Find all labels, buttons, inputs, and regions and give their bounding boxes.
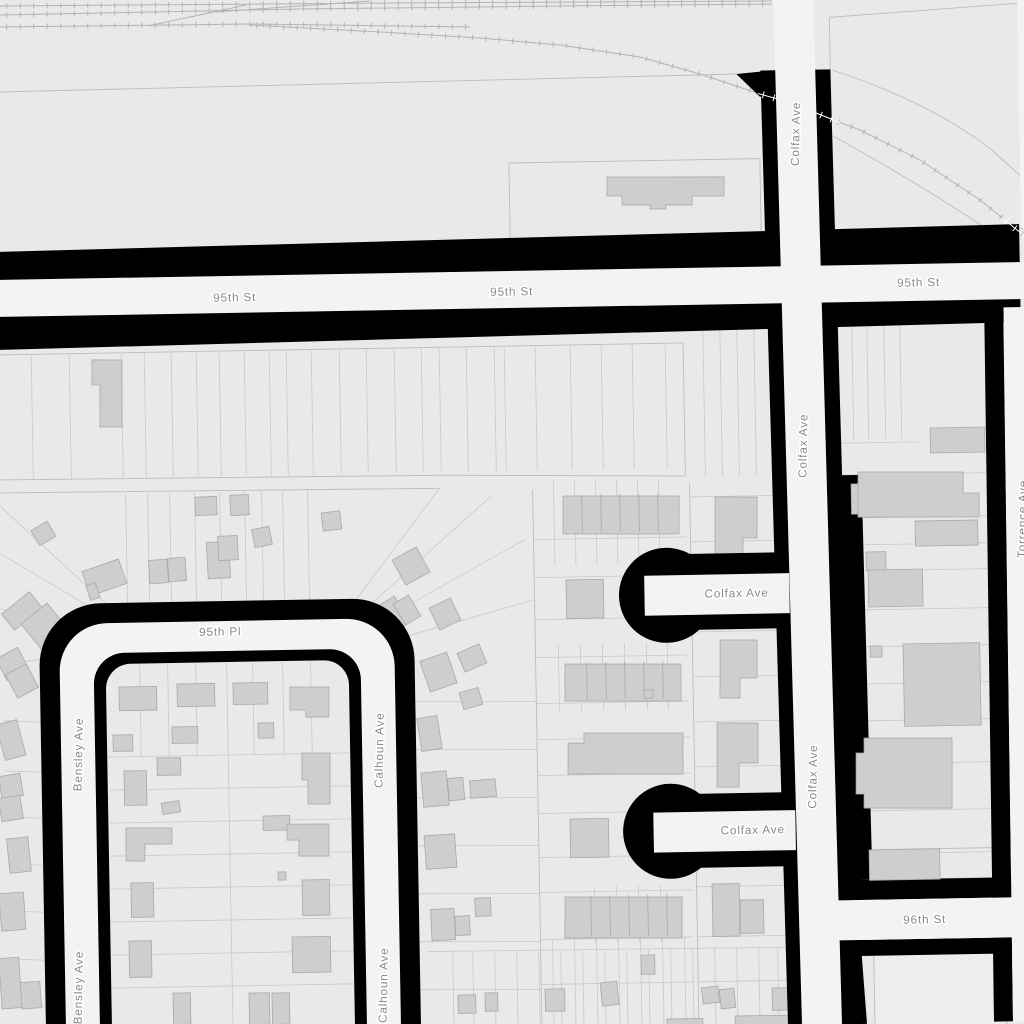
svg-text:95th St: 95th St — [213, 290, 256, 305]
svg-text:95th St: 95th St — [490, 284, 533, 299]
svg-text:Torrence Ave: Torrence Ave — [1015, 480, 1024, 558]
svg-text:Calhoun Ave: Calhoun Ave — [376, 947, 391, 1023]
svg-text:95th Pl: 95th Pl — [199, 624, 242, 639]
svg-text:Colfax Ave: Colfax Ave — [704, 586, 768, 601]
svg-text:96th St: 96th St — [903, 912, 946, 927]
svg-text:Bensley Ave: Bensley Ave — [71, 718, 86, 792]
svg-text:Colfax Ave: Colfax Ave — [805, 744, 820, 808]
svg-text:95th St: 95th St — [897, 275, 940, 290]
svg-text:Colfax Ave: Colfax Ave — [788, 102, 803, 166]
svg-text:Colfax Ave: Colfax Ave — [795, 414, 810, 478]
svg-text:Calhoun Ave: Calhoun Ave — [371, 712, 386, 788]
svg-text:Colfax Ave: Colfax Ave — [720, 822, 784, 837]
svg-text:Bensley Ave: Bensley Ave — [71, 951, 86, 1024]
